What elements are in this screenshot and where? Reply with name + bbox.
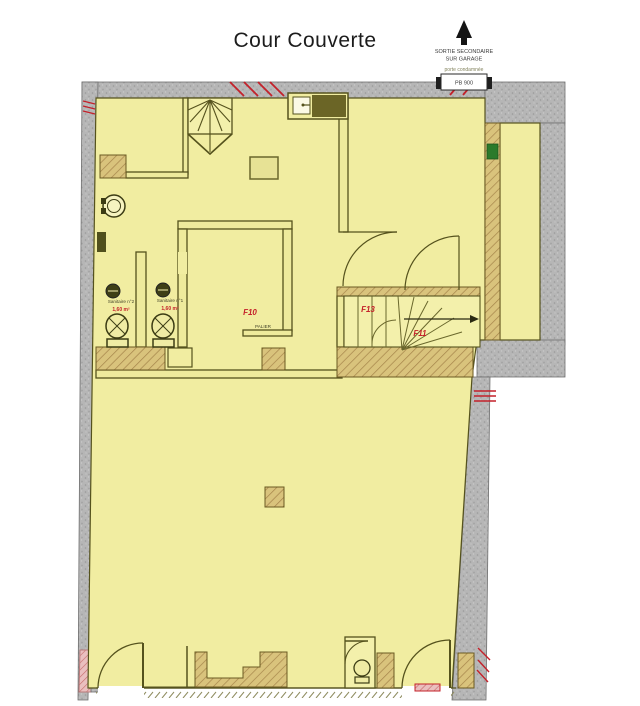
toilet-icon-s2: [106, 314, 128, 347]
red-exit-marker: [415, 684, 440, 691]
door-tag-label: PB 900: [455, 81, 473, 87]
stairwell: F13 F11: [344, 296, 480, 350]
wood-pillar-bottom-2: [458, 653, 474, 688]
exit-arrow-icon: [456, 20, 472, 38]
exit-label-line1: SORTIE SECONDAIRE: [435, 49, 494, 55]
niche: [168, 348, 192, 367]
wall-palier-right: [283, 229, 292, 331]
sanitaire2-label: Sanitaire n°2: [108, 299, 135, 304]
wood-duct-left: [100, 155, 126, 178]
exit-label-line2: SUR GARAGE: [446, 57, 483, 63]
washbasin-icon: [101, 195, 125, 217]
sanitaire1-door-gap: [178, 252, 187, 274]
corridor-floor: [500, 123, 540, 340]
wall-sanitaire-partition: [136, 252, 146, 347]
secondary-exit-annotation: SORTIE SECONDAIRE SUR GARAGE porte conda…: [435, 20, 494, 90]
wood-pillar-bottom-1: [377, 653, 394, 688]
toilet-icon-s1: [152, 314, 174, 347]
wall-top-right-block: [485, 82, 565, 123]
page-title: Cour Couverte: [233, 29, 376, 52]
roof-light: [250, 157, 278, 179]
wall-sanitaire1-right: [178, 229, 187, 347]
green-marker: [487, 144, 498, 159]
wood-pillar-palier: [262, 348, 285, 370]
main-floor: [88, 98, 485, 688]
kitchen-counter: [288, 93, 348, 119]
wall-sanitaire-bottom: [96, 370, 342, 378]
stair-bottom-band: [337, 347, 473, 377]
wall-right-upper: [540, 123, 565, 345]
wall-fixture: [97, 232, 106, 252]
sanitaire2-area: 1,60 m²: [112, 307, 130, 313]
counter-dark-top: [312, 95, 346, 117]
sanitaire1-label: Sanitaire n°1: [157, 298, 184, 303]
toilet-icon-closet: [354, 660, 370, 676]
faucet-dot: [302, 104, 305, 107]
wc-closet: [345, 637, 375, 688]
condemned-door-note: porte condamnée: [445, 67, 484, 73]
sanitaire1-area: 1,60 m²: [161, 306, 179, 312]
stair-code-f13: F13: [361, 305, 375, 314]
wall-right-step: [477, 340, 565, 377]
wall-stair-left: [337, 296, 344, 347]
wall-palier-shelf: [243, 330, 292, 336]
palier-label: PALIER: [255, 324, 272, 329]
floor-plan-page: F13 F11: [0, 0, 640, 706]
wall-top-left-stub: [183, 98, 188, 174]
stair-code-f11: F11: [413, 329, 427, 338]
floor-plan-drawing: F13 F11: [0, 0, 640, 706]
wall-palier-top: [178, 221, 292, 229]
central-column: [265, 487, 284, 507]
counter-ledge: [126, 172, 188, 178]
palier-code: F10: [243, 308, 257, 317]
wood-band-sanitaires: [96, 347, 165, 370]
